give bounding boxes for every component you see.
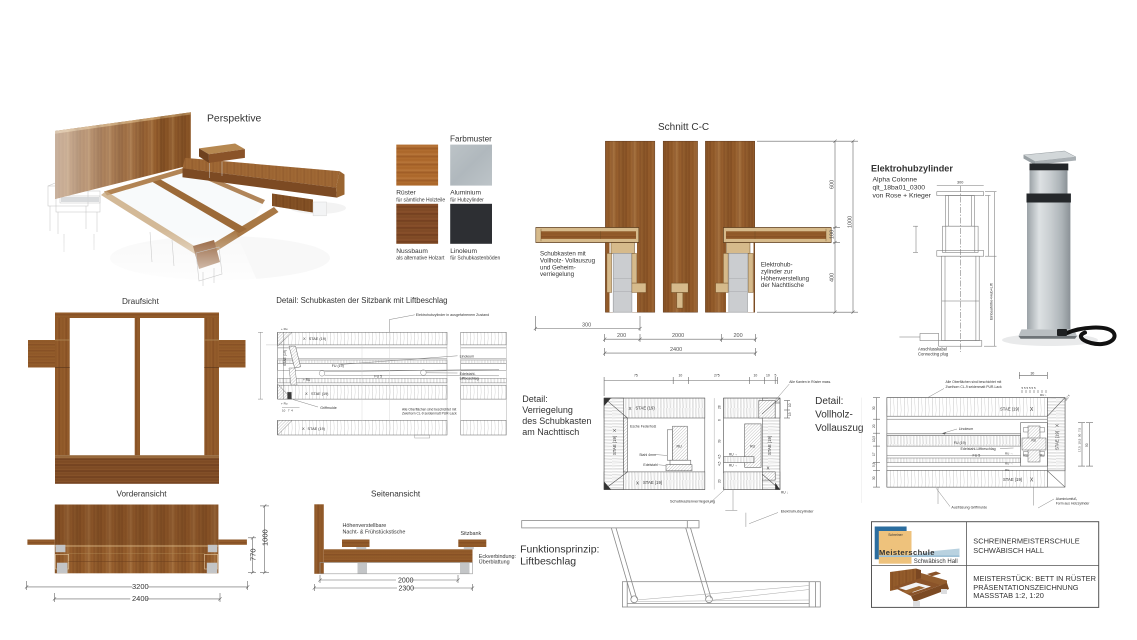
svg-text:2400: 2400 <box>132 594 149 603</box>
svg-text:Edelstahl-Liftbeschlag: Edelstahl-Liftbeschlag <box>961 447 996 451</box>
svg-text:Sitzbank: Sitzbank <box>461 531 482 537</box>
svg-text:Einbauhöhe+Hub+Lift: Einbauhöhe+Hub+Lift <box>990 282 994 320</box>
svg-text:FU 5: FU 5 <box>374 374 382 378</box>
svg-text:MASSSTAB 1:2, 1:20: MASSSTAB 1:2, 1:20 <box>973 591 1044 600</box>
svg-text:des Schubkasten: des Schubkasten <box>522 416 591 426</box>
svg-text:X: X <box>612 429 617 432</box>
svg-text:200: 200 <box>617 333 626 339</box>
svg-text:STAE (19): STAE (19) <box>308 427 326 431</box>
svg-text:Zweihorn CL-9 seidenmatt PUR-L: Zweihorn CL-9 seidenmatt PUR-Lack <box>946 385 1002 389</box>
svg-text:RU →: RU → <box>1005 452 1013 456</box>
svg-text:Detail:: Detail: <box>522 394 548 404</box>
svg-text:+ Ru: + Ru <box>281 327 288 331</box>
svg-text:+ Ru: + Ru <box>281 402 288 406</box>
svg-text:Elektrohubzylinder: Elektrohubzylinder <box>871 164 953 174</box>
svg-text:Aluminium: Aluminium <box>450 190 481 197</box>
svg-text:verriegelung: verriegelung <box>540 271 575 278</box>
svg-text:Liftbeschlag: Liftbeschlag <box>460 377 479 381</box>
svg-text:Schwäbisch Hall: Schwäbisch Hall <box>914 559 958 565</box>
svg-text:Alle Kanten in Rüster mass.: Alle Kanten in Rüster mass. <box>789 380 831 384</box>
svg-text:Überblattung: Überblattung <box>479 558 510 565</box>
svg-text:10,5: 10,5 <box>872 436 876 442</box>
svg-text:FU (19): FU (19) <box>954 441 966 445</box>
svg-text:1000: 1000 <box>261 529 270 546</box>
svg-text:Form aus Holzzylinder: Form aus Holzzylinder <box>1056 501 1091 505</box>
svg-text:Stahl 4mm: Stahl 4mm <box>639 453 656 457</box>
svg-text:30: 30 <box>872 406 876 410</box>
svg-text:10: 10 <box>679 374 683 378</box>
svg-text:qlt_18ba01_0300: qlt_18ba01_0300 <box>873 185 926 192</box>
svg-text:Alpha Colonne: Alpha Colonne <box>873 177 918 184</box>
svg-text:STAE (19): STAE (19) <box>767 435 772 455</box>
svg-text:X: X <box>305 391 308 396</box>
svg-text:Alle Oberflächen sind beschich: Alle Oberflächen sind beschichtet mit <box>946 380 1002 384</box>
svg-text:3200: 3200 <box>132 582 149 591</box>
svg-text:Vollholz-: Vollholz- <box>815 410 853 421</box>
svg-text:SCHWÄBISCH HALL: SCHWÄBISCH HALL <box>973 546 1044 555</box>
svg-text:200: 200 <box>734 333 743 339</box>
svg-text:Griffmulde: Griffmulde <box>320 406 337 410</box>
svg-text:4,5: 4,5 <box>718 461 722 466</box>
svg-text:Detail:: Detail: <box>815 396 843 407</box>
svg-text:Schnitt C-C: Schnitt C-C <box>658 122 709 133</box>
svg-text:X: X <box>302 426 305 431</box>
svg-text:300: 300 <box>582 323 591 329</box>
svg-text:Nacht- & Frühstückstische: Nacht- & Frühstückstische <box>343 530 406 536</box>
svg-text:Detail: Schubkasten der Sitzba: Detail: Schubkasten der Sitzbank mit Lif… <box>276 296 447 305</box>
svg-text:am Nachttisch: am Nachttisch <box>522 427 579 437</box>
svg-text:400: 400 <box>830 273 836 282</box>
svg-text:Edelstahl-: Edelstahl- <box>460 372 477 376</box>
svg-text:Linoleum: Linoleum <box>450 248 477 255</box>
svg-text:SCHREINERMEISTERSCHULE: SCHREINERMEISTERSCHULE <box>973 537 1079 546</box>
svg-text:X: X <box>303 336 306 341</box>
svg-text:X: X <box>629 406 632 411</box>
svg-text:Aluminiumfuß,: Aluminiumfuß, <box>1056 497 1078 501</box>
svg-text:5,5: 5,5 <box>872 462 876 467</box>
svg-text:2000: 2000 <box>672 333 684 339</box>
svg-text:770: 770 <box>249 548 258 561</box>
svg-text:RU →: RU → <box>729 464 738 468</box>
svg-text:von Rose + Krieger: von Rose + Krieger <box>873 193 932 200</box>
svg-text:100: 100 <box>830 230 836 239</box>
svg-text:RU ↓: RU ↓ <box>781 491 788 495</box>
svg-text:20: 20 <box>872 424 876 428</box>
svg-text:75: 75 <box>634 374 638 378</box>
svg-text:für sämtliche Holzteile: für sämtliche Holzteile <box>396 197 445 203</box>
svg-text:STAE (19): STAE (19) <box>643 480 663 485</box>
svg-text:Elektrohubzylinder: Elektrohubzylinder <box>781 509 815 514</box>
svg-text:als alternative Holzart: als alternative Holzart <box>396 256 445 262</box>
svg-text:+ RU: + RU <box>303 378 311 382</box>
svg-text:der Nachttische: der Nachttische <box>761 282 805 289</box>
svg-text:Rüster: Rüster <box>396 190 416 197</box>
svg-text:STAE (19): STAE (19) <box>311 392 329 396</box>
svg-text:RU: RU <box>1024 454 1029 458</box>
svg-text:10: 10 <box>788 403 792 407</box>
svg-text:2300: 2300 <box>399 586 415 593</box>
svg-text:STAE (19): STAE (19) <box>612 435 617 455</box>
svg-text:2000: 2000 <box>398 578 414 585</box>
svg-text:RU →: RU → <box>729 453 738 457</box>
svg-text:Seitenansicht: Seitenansicht <box>371 490 421 499</box>
svg-text:FU 5: FU 5 <box>973 454 981 458</box>
svg-text:X: X <box>767 466 770 471</box>
svg-text:4,5: 4,5 <box>718 454 722 459</box>
svg-text:30: 30 <box>872 476 876 480</box>
svg-text:1000: 1000 <box>848 216 854 228</box>
svg-text:Linoleum: Linoleum <box>959 427 974 431</box>
svg-text:STAE (19): STAE (19) <box>1055 430 1060 450</box>
svg-text:für Hubzylinder: für Hubzylinder <box>450 197 484 203</box>
svg-text:Linoleum: Linoleum <box>460 354 475 358</box>
svg-text:MEISTERSTÜCK: BETT IN RÜSTER: MEISTERSTÜCK: BETT IN RÜSTER <box>973 574 1096 583</box>
svg-text:275: 275 <box>714 374 720 378</box>
svg-text:Elektrohubzylinder in ausgefah: Elektrohubzylinder in ausgefahrenem Zust… <box>416 313 489 317</box>
svg-text:10: 10 <box>754 374 758 378</box>
svg-text:Vollauszug: Vollauszug <box>815 423 863 434</box>
svg-text:STAE (19): STAE (19) <box>1003 477 1023 482</box>
svg-text:RU: RU <box>1032 439 1037 443</box>
svg-text:Ru: Ru <box>1040 454 1044 458</box>
svg-text:28: 28 <box>718 405 722 409</box>
svg-text:Schubkastenverriegelung: Schubkastenverriegelung <box>670 499 715 504</box>
svg-text:Liftbeschlag: Liftbeschlag <box>520 556 576 568</box>
svg-text:Funktionsprinzip:: Funktionsprinzip: <box>520 544 599 556</box>
svg-text:50: 50 <box>1085 443 1089 447</box>
svg-text:10 7 4: 10 7 4 <box>282 409 293 413</box>
svg-text:Perspektive: Perspektive <box>207 114 262 125</box>
svg-text:600: 600 <box>830 180 836 189</box>
svg-text:6: 6 <box>718 419 722 421</box>
svg-text:STAE (19): STAE (19) <box>636 406 656 411</box>
svg-text:30: 30 <box>1031 371 1035 375</box>
svg-text:5 5 5 5 5 5: 5 5 5 5 5 5 <box>1022 386 1037 390</box>
svg-text:Ausfräsung Griffmulde: Ausfräsung Griffmulde <box>951 506 987 510</box>
svg-text:X: X <box>636 480 639 485</box>
svg-text:20: 20 <box>718 479 722 483</box>
svg-text:RU →: RU → <box>1005 468 1013 472</box>
svg-text:Edelstahl: Edelstahl <box>643 463 658 467</box>
svg-text:17,5 10,5 50 7,5: 17,5 10,5 50 7,5 <box>1078 427 1082 452</box>
svg-text:13: 13 <box>788 412 792 416</box>
svg-text:STAE (19): STAE (19) <box>309 337 327 341</box>
svg-text:10: 10 <box>766 374 770 378</box>
svg-text:Connecting plug: Connecting plug <box>918 352 949 357</box>
svg-text:Draufsicht: Draufsicht <box>122 297 160 306</box>
svg-text:Farbmuster: Farbmuster <box>450 135 492 144</box>
svg-text:Schreiner: Schreiner <box>888 533 903 537</box>
svg-text:X: X <box>1055 424 1060 427</box>
svg-text:STAE (19): STAE (19) <box>283 350 287 366</box>
svg-text:Höhenverstellbare: Höhenverstellbare <box>343 523 387 529</box>
svg-text:17: 17 <box>872 452 876 456</box>
svg-text:Esche Federholz: Esche Federholz <box>630 425 657 429</box>
svg-text:RU ↓: RU ↓ <box>1040 393 1047 397</box>
svg-text:5: 5 <box>775 374 777 378</box>
svg-text:RU: RU <box>677 445 683 449</box>
svg-text:Zweihorn CL-9 seidenmatt PUR-L: Zweihorn CL-9 seidenmatt PUR-Lack <box>402 412 457 416</box>
svg-text:300: 300 <box>957 181 963 185</box>
svg-text:RU: RU <box>750 445 756 449</box>
svg-text:Vorderansicht: Vorderansicht <box>117 490 168 499</box>
svg-text:39: 39 <box>718 439 722 443</box>
svg-text:für Schubkastenböden: für Schubkastenböden <box>450 256 500 262</box>
svg-text:RU →: RU → <box>1005 462 1013 466</box>
svg-text:STAE (19): STAE (19) <box>1000 406 1020 411</box>
svg-text:2400: 2400 <box>670 347 682 353</box>
svg-text:Nussbaum: Nussbaum <box>396 248 428 255</box>
svg-text:Verriegelung: Verriegelung <box>522 405 573 415</box>
